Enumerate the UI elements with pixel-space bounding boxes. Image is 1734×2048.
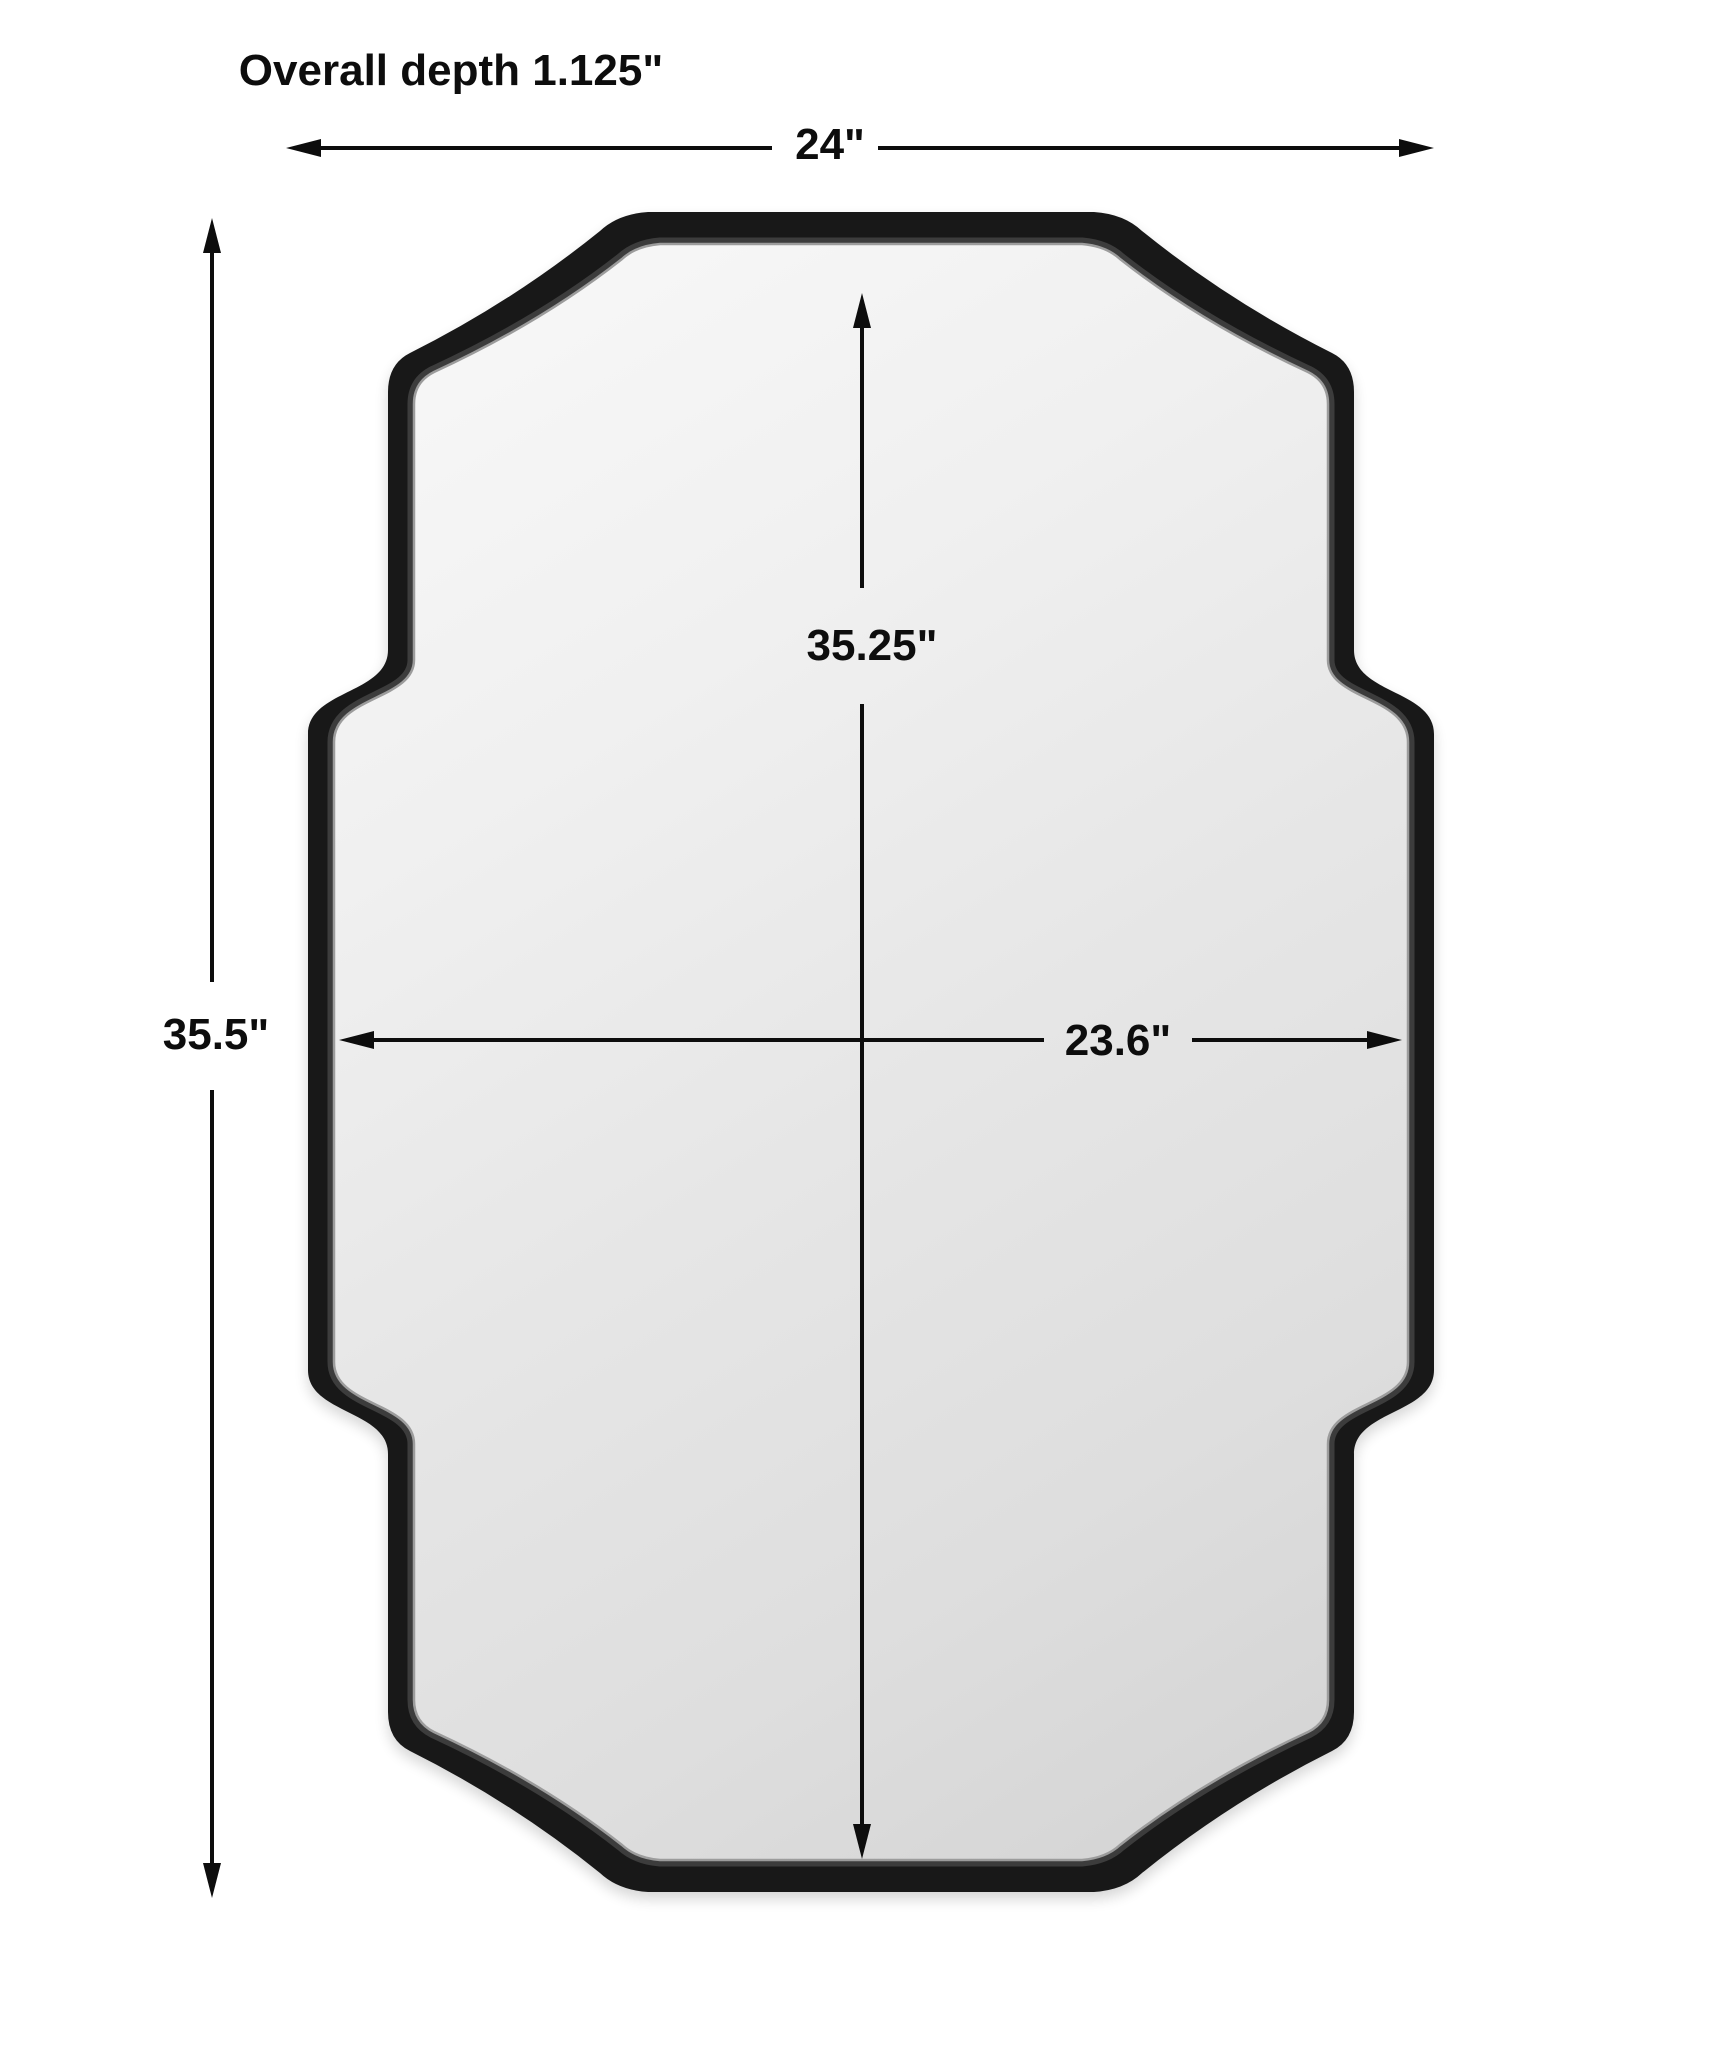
depth-note-label: Overall depth 1.125" <box>239 49 663 93</box>
mirror-dimension-diagram: Overall depth 1.125" 24" 35.5" 35.25" 23… <box>0 0 1734 2048</box>
arrow-up-icon <box>203 218 221 253</box>
mirror-glass <box>334 244 1408 1860</box>
inner-width-label: 23.6" <box>1065 1019 1172 1063</box>
inner-height-label: 35.25" <box>807 624 938 668</box>
overall-height-label: 35.5" <box>163 1013 270 1057</box>
arrow-right-icon <box>1399 139 1434 157</box>
overall-width-label: 24" <box>795 123 865 167</box>
arrow-down-icon <box>203 1863 221 1898</box>
arrow-left-icon <box>286 139 321 157</box>
